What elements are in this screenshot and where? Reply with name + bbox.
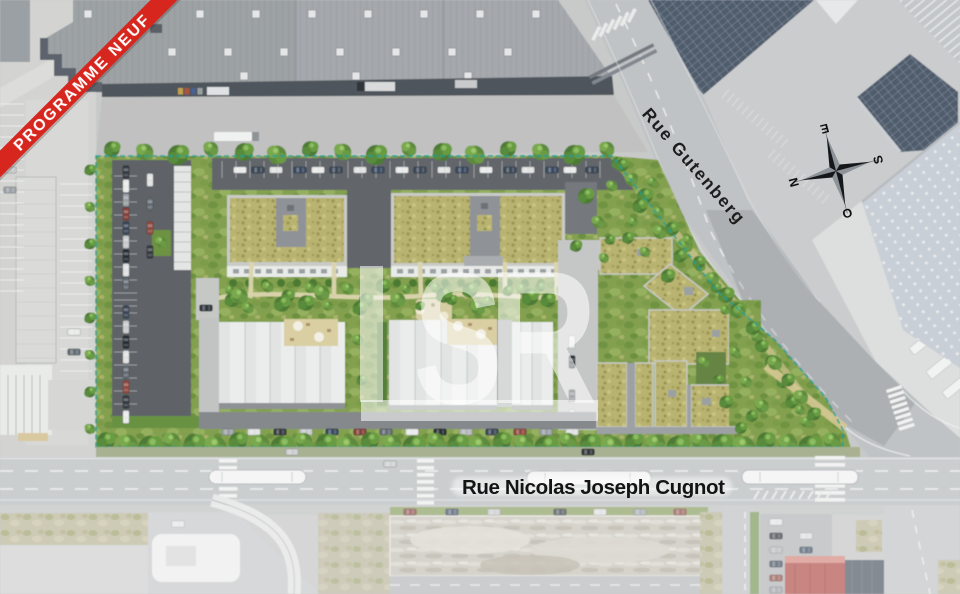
- svg-text:Rue Nicolas Joseph Cugnot: Rue Nicolas Joseph Cugnot: [462, 476, 725, 499]
